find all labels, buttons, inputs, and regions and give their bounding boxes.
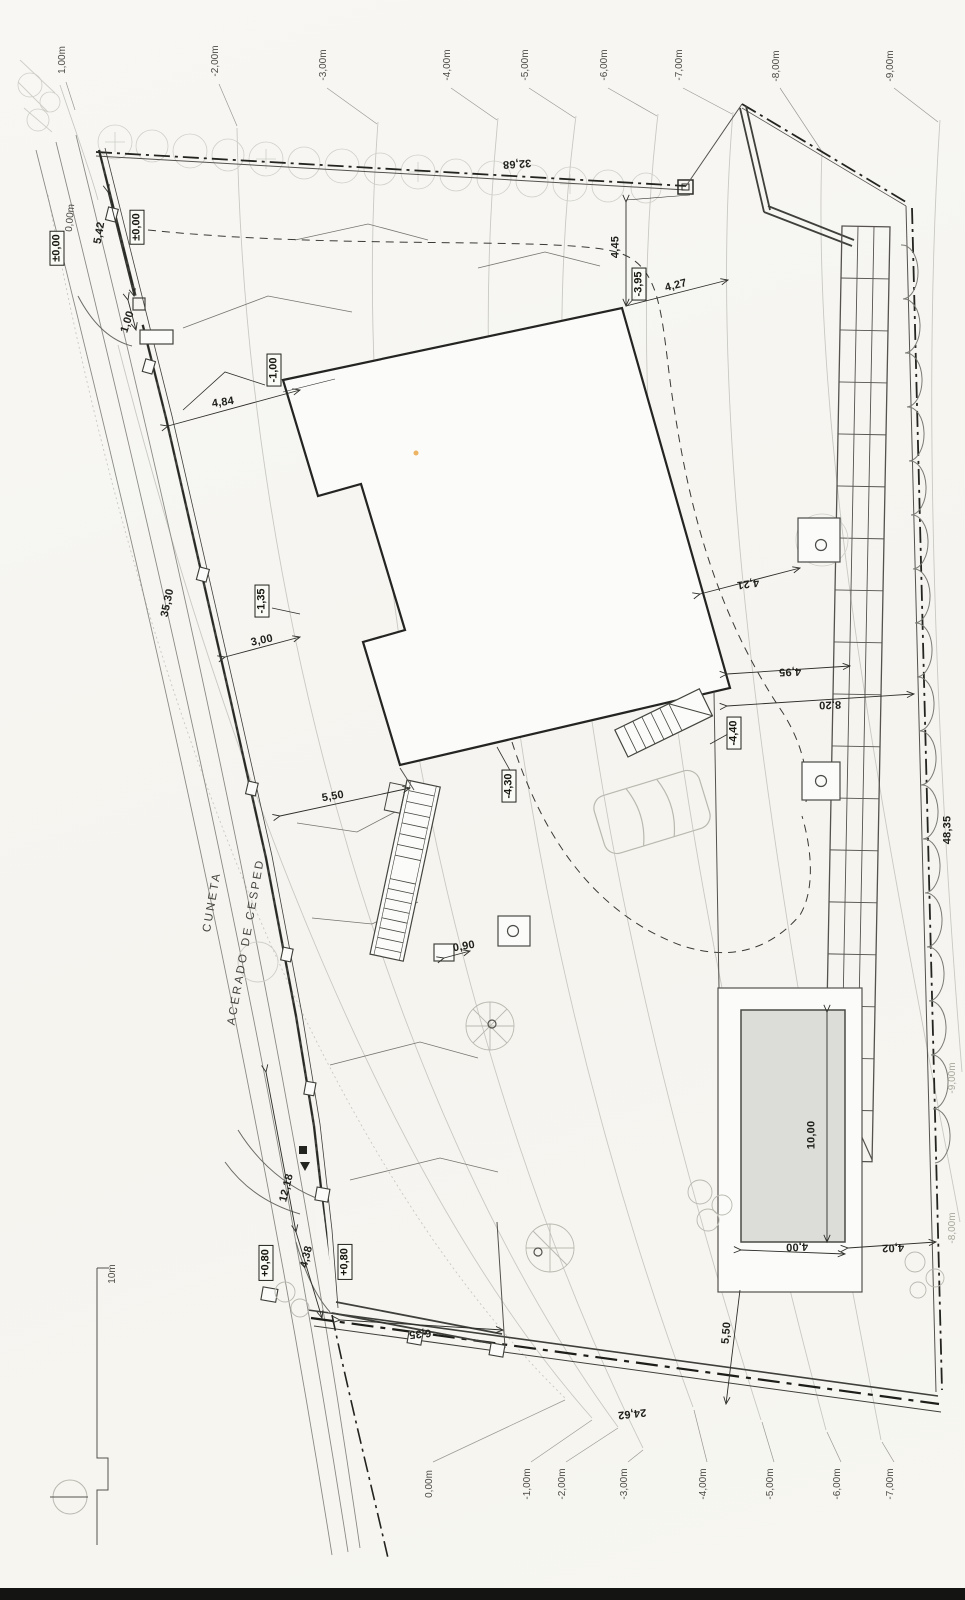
contour-label-m7-bottom: -7,00m: [886, 1468, 896, 1499]
building-outline: [283, 308, 730, 765]
contour-label-m6-top: -6,00m: [600, 49, 610, 80]
wall-posts: [105, 207, 329, 1302]
dim-4-00-pool: 4,00: [786, 1240, 809, 1252]
dim-24-62: 24,62: [617, 1406, 647, 1420]
level-box-minus4-30: -4,30: [502, 769, 517, 802]
dim-5-50-lower: 5,50: [721, 1321, 734, 1344]
level-box-entry: ±0,00: [130, 209, 145, 244]
scale-label-10m: 10m: [108, 1264, 118, 1283]
contour-label-m1-bottom: -1,00m: [523, 1468, 533, 1499]
contour-label-m8-right: -8,00m: [948, 1212, 958, 1243]
gate-marker-square: [299, 1146, 307, 1154]
contour-label-m5-top: -5,00m: [521, 49, 531, 80]
street-lines: [18, 60, 360, 1555]
dim-10-00-pool: 10,00: [807, 1121, 818, 1150]
dim-4-95: 4,95: [779, 665, 802, 677]
level-box-plus0-80-b: +0,80: [338, 1244, 353, 1280]
contour-label-m4-top: -4,00m: [443, 49, 453, 80]
dim-32-68: 32,68: [502, 157, 531, 170]
gate-marker-triangle: [300, 1162, 310, 1171]
scale-bar: [50, 1268, 109, 1545]
dim-4-21: 4,21: [736, 576, 760, 590]
contour-label-m6-bottom: -6,00m: [833, 1468, 843, 1499]
contour-label-m5-bottom: -5,00m: [766, 1468, 776, 1499]
contour-label-m3-top: -3,00m: [319, 49, 329, 80]
contour-label-m2-bottom: -2,00m: [558, 1468, 568, 1499]
contour-label-m9-right: -9,00m: [948, 1062, 958, 1093]
dim-8-20: 8,20: [819, 698, 842, 710]
level-box-street: ±0,00: [50, 230, 65, 265]
level-box-minus1: -1,00: [267, 353, 282, 386]
contour-label-m2-top: -2,00m: [211, 45, 221, 76]
dim-6-35: 6,35: [408, 1326, 431, 1339]
plot-boundary: [96, 104, 942, 1558]
dim-4-45: 4,45: [611, 236, 622, 258]
stairs-long: [354, 777, 440, 962]
contour-label-m8-top: -8,00m: [772, 50, 782, 81]
contour-label-0-bottom: 0,00m: [425, 1470, 435, 1498]
level-box-minus1-35: -1,35: [255, 584, 270, 617]
contour-label-plus1: 1,00m: [58, 46, 68, 74]
site-plan-drawing: [0, 0, 965, 1600]
level-box-minus3-95: -3,95: [632, 267, 647, 300]
contour-label-m7-top: -7,00m: [675, 49, 685, 80]
pool-basin: [741, 1010, 845, 1242]
dim-48-35: 48,35: [943, 816, 954, 845]
dim-4-02: 4,02: [882, 1241, 905, 1253]
level-box-plus0-80-a: +0,80: [259, 1245, 274, 1281]
hedge-scallops-right: [901, 245, 950, 1163]
contour-label-m4-bottom: -4,00m: [699, 1468, 709, 1499]
contour-label-m9-top: -9,00m: [886, 50, 896, 81]
stairs-long-base-landing: [434, 944, 454, 961]
level-box-minus4-40: -4,40: [727, 716, 742, 749]
scan-artifact: [414, 451, 419, 456]
scan-page-edge: [0, 1588, 965, 1600]
contour-label-m3-bottom: -3,00m: [620, 1468, 630, 1499]
